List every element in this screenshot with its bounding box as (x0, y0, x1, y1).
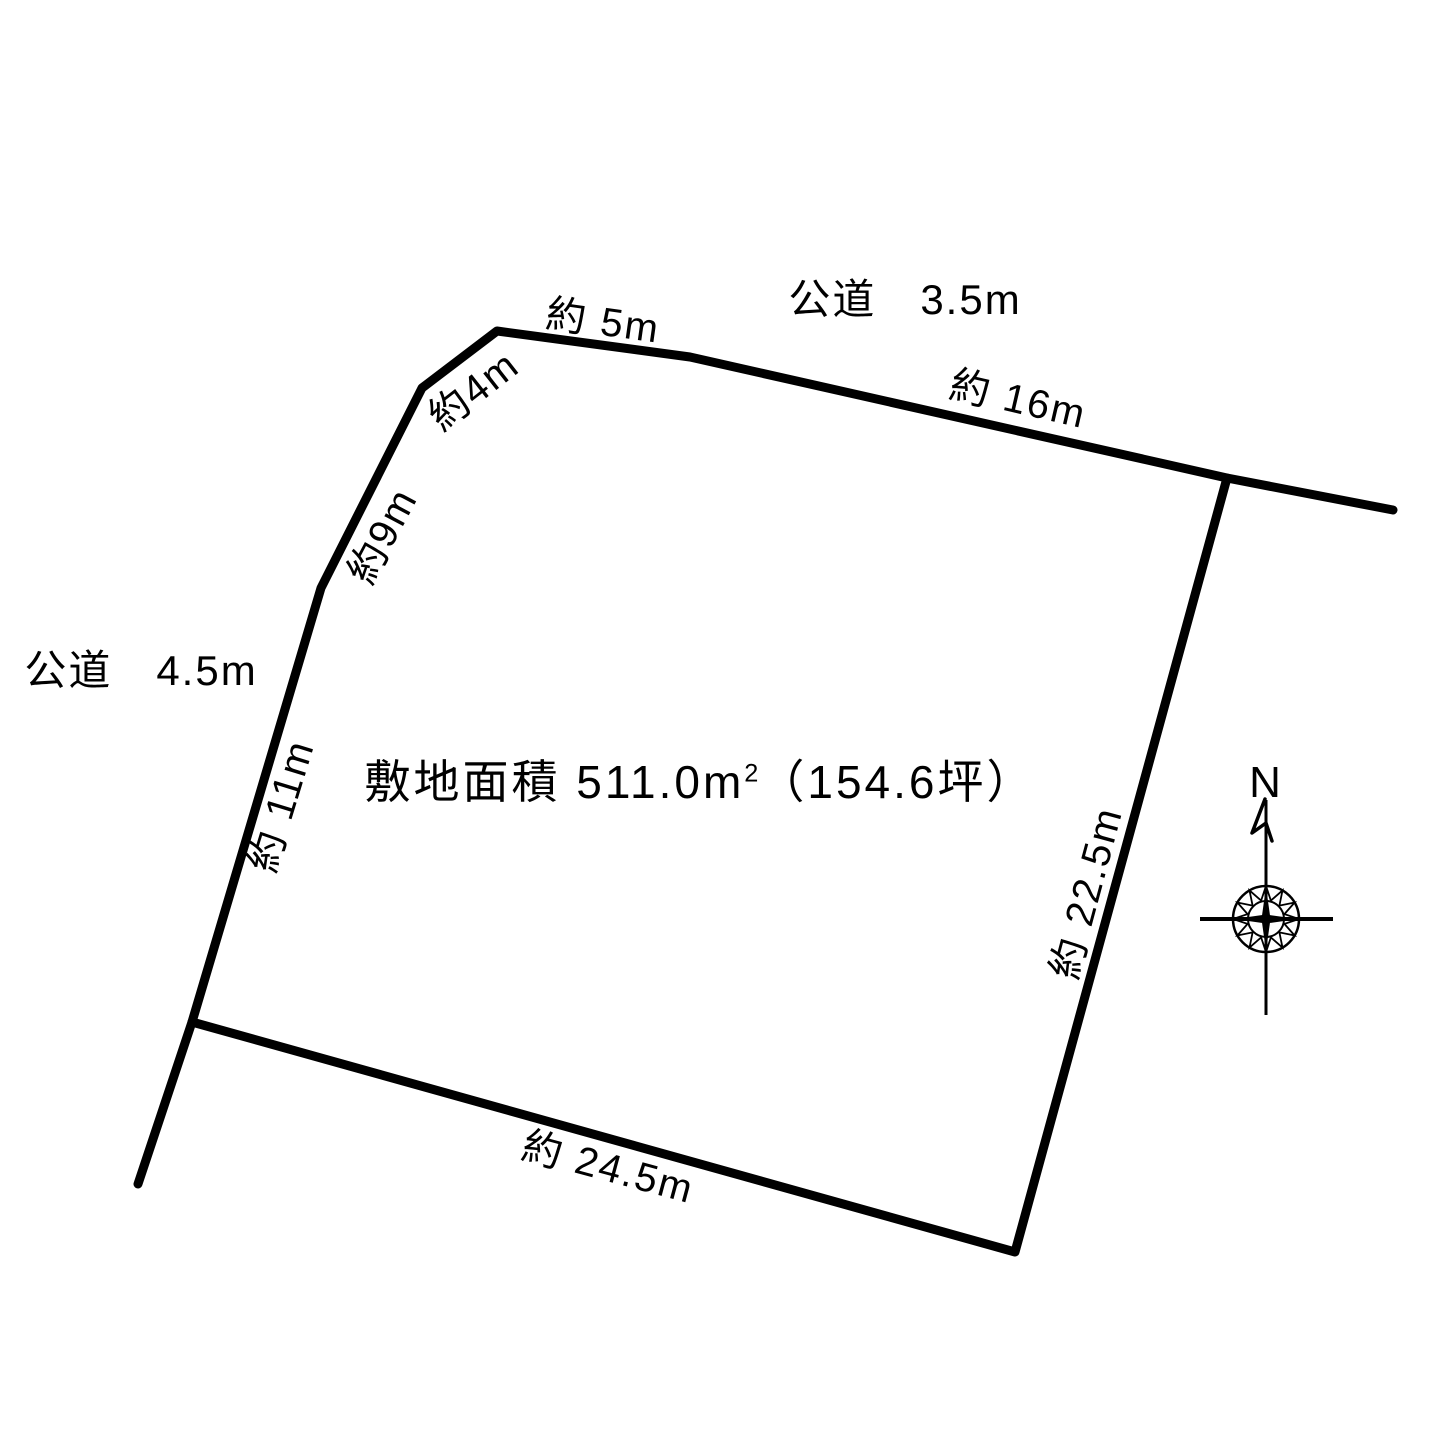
road-line-left-extension (138, 1022, 192, 1184)
site-area-label: 敷地面積 511.0m2（154.6坪） (365, 759, 1036, 805)
plot-geometry (0, 0, 1440, 1440)
road-line-top-extension (1227, 478, 1393, 510)
road-label-left: 公道 4.5m (24, 650, 257, 692)
compass-needle-east (1266, 915, 1298, 924)
compass-north-label: N (1249, 761, 1281, 805)
site-area-text: 敷地面積 511.0m (365, 756, 745, 808)
site-area-superscript: 2 (744, 760, 758, 788)
compass-needle-south (1262, 919, 1271, 951)
compass-needle-west (1234, 915, 1266, 924)
compass-needle-north (1262, 887, 1271, 919)
compass-rose-icon (1200, 799, 1333, 1015)
road-label-top: 公道 3.5m (788, 279, 1021, 321)
land-plot-diagram: 公道 3.5m 公道 4.5m 約 5m 約 16m 約4m 約9m 約 11m… (0, 0, 1440, 1440)
site-area-tsubo: （154.6坪） (758, 756, 1035, 808)
